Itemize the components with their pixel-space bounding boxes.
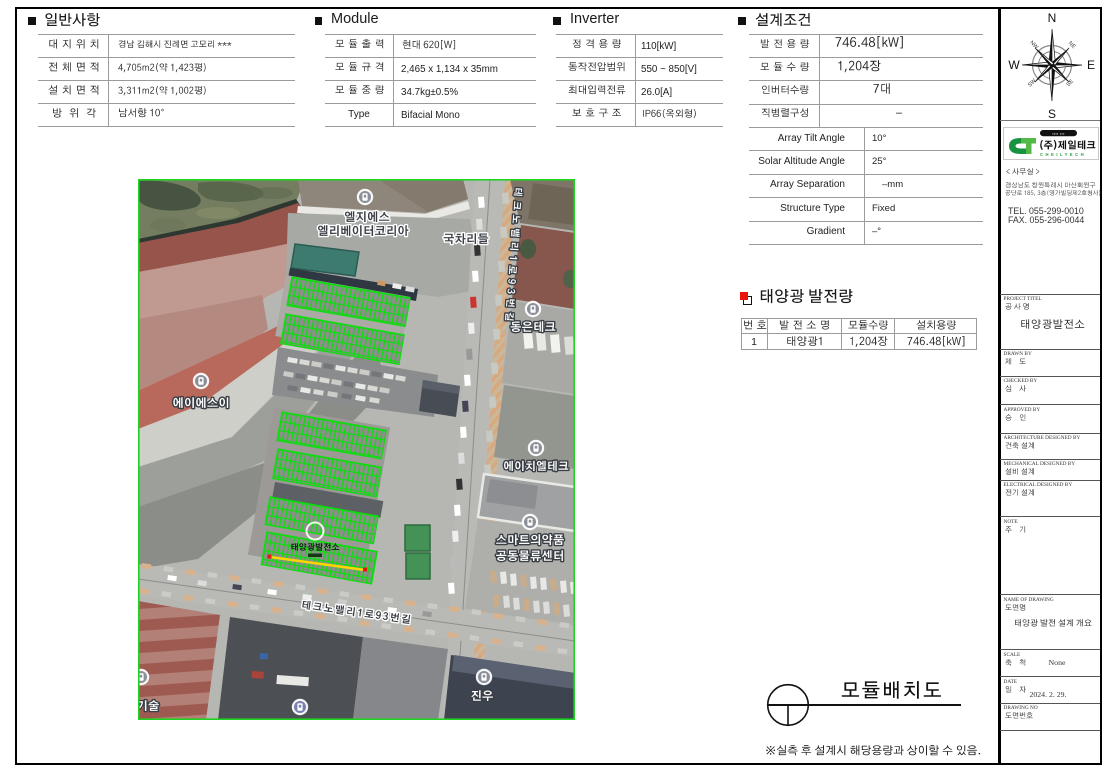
svg-text:W: W (1008, 58, 1020, 72)
svg-text:▪▪▪▪ ▪▪▪: ▪▪▪▪ ▪▪▪ (1052, 132, 1064, 136)
svg-text:CHEILTECH: CHEILTECH (1040, 152, 1086, 157)
svg-text:SW: SW (1027, 77, 1038, 88)
svg-text:NW: NW (1028, 39, 1039, 50)
svg-text:N: N (1048, 11, 1057, 25)
svg-text:S: S (1048, 107, 1056, 121)
svg-text:E: E (1087, 58, 1095, 72)
